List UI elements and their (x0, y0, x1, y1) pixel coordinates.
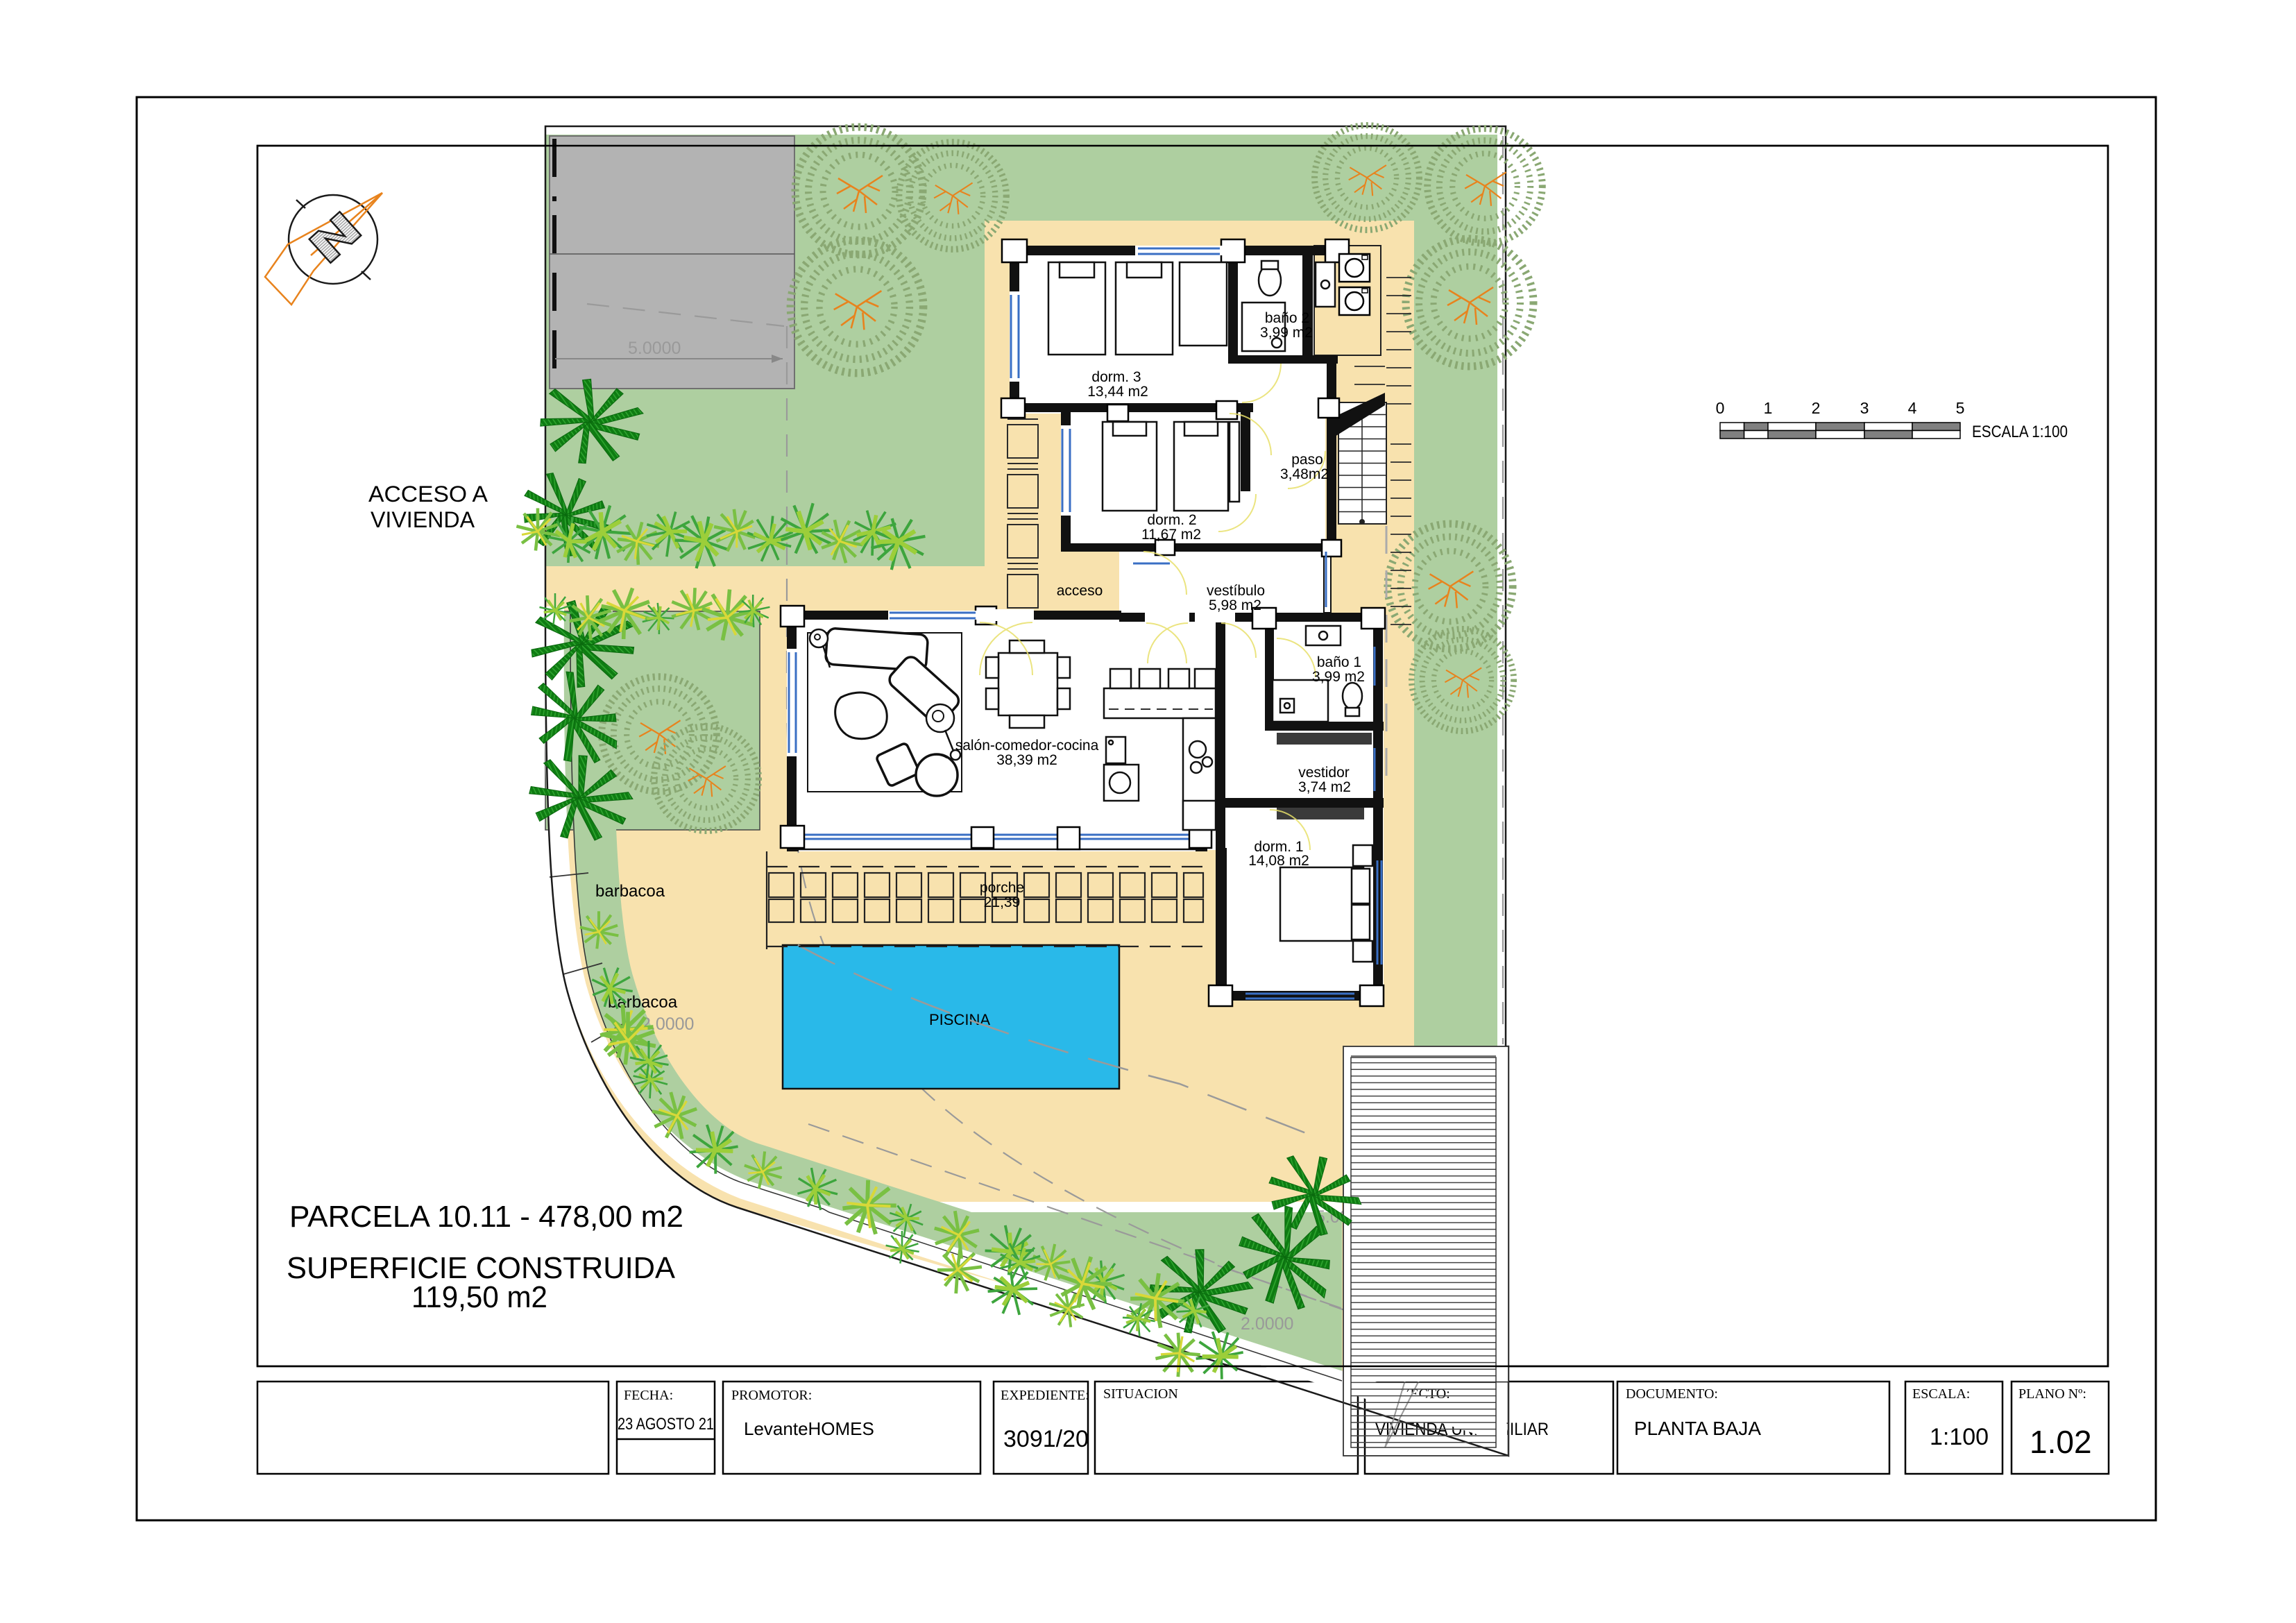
svg-text:1.02: 1.02 (2030, 1424, 2092, 1460)
svg-text:VIVIENDA: VIVIENDA (371, 507, 475, 532)
svg-text:3,74 m2: 3,74 m2 (1298, 779, 1351, 795)
svg-text:5.0000: 5.0000 (628, 339, 681, 358)
svg-text:paso: paso (1291, 452, 1323, 468)
svg-text:DOCUMENTO:: DOCUMENTO: (1626, 1386, 1718, 1402)
svg-text:2.0000: 2.0000 (1241, 1314, 1293, 1334)
svg-text:23 AGOSTO 21: 23 AGOSTO 21 (618, 1415, 714, 1434)
svg-text:SITUACION: SITUACION (1103, 1386, 1178, 1402)
svg-text:vestíbulo: vestíbulo (1207, 583, 1265, 599)
svg-text:0: 0 (1716, 399, 1725, 417)
svg-text:3,99 m2: 3,99 m2 (1312, 669, 1365, 685)
svg-text:EXPEDIENTE:: EXPEDIENTE: (1001, 1388, 1089, 1403)
svg-text:LevanteHOMES: LevanteHOMES (744, 1418, 874, 1439)
svg-text:5,98 m2: 5,98 m2 (1209, 597, 1261, 613)
svg-text:3,48m2: 3,48m2 (1280, 466, 1329, 482)
svg-text:salón-comedor-cocina: salón-comedor-cocina (955, 738, 1099, 754)
svg-text:ACCESO A: ACCESO A (368, 482, 488, 507)
svg-text:PLANTA BAJA: PLANTA BAJA (1634, 1418, 1761, 1439)
svg-text:14,08 m2: 14,08 m2 (1248, 853, 1309, 869)
svg-text:dorm. 3: dorm. 3 (1091, 369, 1141, 385)
svg-text:2: 2 (1812, 399, 1821, 417)
svg-text:1: 1 (1764, 399, 1773, 417)
svg-text:21,39: 21,39 (984, 894, 1021, 910)
svg-text:PISCINA: PISCINA (929, 1011, 990, 1028)
svg-text:barbacoa: barbacoa (595, 882, 665, 901)
svg-text:3091/20: 3091/20 (1003, 1426, 1089, 1452)
svg-text:3,99 m2: 3,99 m2 (1260, 325, 1313, 341)
svg-text:2.0000: 2.0000 (641, 1014, 694, 1034)
svg-text:4: 4 (1908, 399, 1917, 417)
svg-text:PLANO Nº:: PLANO Nº: (2018, 1386, 2086, 1402)
svg-text:baño 2: baño 2 (1265, 310, 1309, 326)
svg-text:acceso: acceso (1057, 583, 1103, 599)
svg-text:PARCELA 10.11 - 478,00 m2: PARCELA 10.11 - 478,00 m2 (289, 1200, 683, 1234)
svg-text:5: 5 (1956, 399, 1965, 417)
svg-text:11,67 m2: 11,67 m2 (1141, 527, 1201, 543)
svg-text:baño 1: baño 1 (1317, 654, 1361, 670)
svg-text:FECHA:: FECHA: (624, 1388, 673, 1403)
svg-text:dorm. 2: dorm. 2 (1147, 512, 1196, 528)
svg-text:119,50 m2: 119,50 m2 (411, 1280, 547, 1314)
svg-text:vestidor: vestidor (1298, 765, 1350, 781)
svg-text:ESCALA 1:100: ESCALA 1:100 (1972, 423, 2068, 441)
svg-text:3: 3 (1860, 399, 1869, 417)
svg-text:1:100: 1:100 (1930, 1424, 1989, 1450)
svg-text:13,44 m2: 13,44 m2 (1087, 384, 1148, 400)
svg-text:porche: porche (980, 880, 1024, 896)
svg-text:38,39 m2: 38,39 m2 (996, 752, 1057, 768)
svg-text:PROMOTOR:: PROMOTOR: (731, 1388, 812, 1403)
svg-text:ESCALA:: ESCALA: (1912, 1386, 1970, 1402)
